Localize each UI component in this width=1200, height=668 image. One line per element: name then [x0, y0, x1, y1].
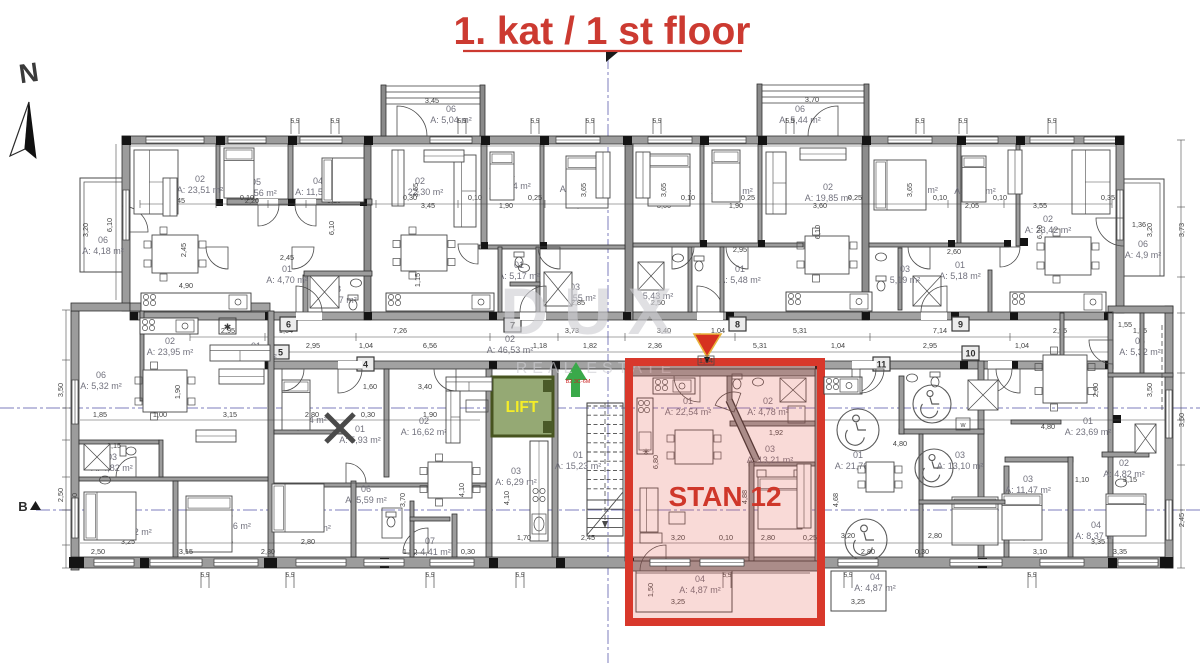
svg-text:10: 10 — [965, 349, 975, 359]
svg-text:06: 06 — [96, 370, 106, 380]
svg-text:03: 03 — [1023, 474, 1033, 484]
svg-text:A: 4,18 m²: A: 4,18 m² — [82, 246, 124, 256]
svg-text:1,90: 1,90 — [173, 385, 182, 399]
svg-text:5,5: 5,5 — [586, 119, 595, 125]
svg-text:3,35: 3,35 — [1113, 547, 1127, 556]
svg-text:2,80: 2,80 — [301, 537, 315, 546]
svg-text:0,10: 0,10 — [468, 193, 482, 202]
svg-text:0,10: 0,10 — [240, 193, 254, 202]
svg-text:1,00: 1,00 — [153, 410, 167, 419]
svg-text:9: 9 — [958, 320, 963, 330]
svg-text:2,95: 2,95 — [306, 341, 320, 350]
svg-text:0,25: 0,25 — [741, 193, 755, 202]
svg-text:0,30: 0,30 — [461, 547, 475, 556]
svg-text:02: 02 — [1043, 214, 1053, 224]
svg-text:A: 5,18 m²: A: 5,18 m² — [939, 271, 981, 281]
svg-text:3,60: 3,60 — [813, 201, 827, 210]
svg-text:✱: ✱ — [224, 322, 232, 332]
svg-text:02: 02 — [823, 182, 833, 192]
svg-text:02: 02 — [195, 174, 205, 184]
svg-text:2,60: 2,60 — [1091, 383, 1100, 397]
svg-text:A: 13,10 m²: A: 13,10 m² — [937, 461, 984, 471]
svg-text:1. kat / 1 st floor: 1. kat / 1 st floor — [454, 10, 751, 53]
svg-text:6,10: 6,10 — [327, 221, 336, 235]
svg-text:1,10: 1,10 — [1075, 475, 1089, 484]
svg-text:A: 19,85 m²: A: 19,85 m² — [805, 193, 852, 203]
svg-text:3,70: 3,70 — [805, 95, 819, 104]
svg-text:1,04: 1,04 — [831, 341, 845, 350]
svg-text:1,55: 1,55 — [1118, 320, 1132, 329]
svg-text:0,10: 0,10 — [993, 193, 1007, 202]
svg-text:5,5: 5,5 — [1028, 573, 1037, 579]
svg-text:2,45: 2,45 — [1177, 513, 1186, 527]
svg-text:06: 06 — [1138, 239, 1148, 249]
svg-text:11: 11 — [877, 360, 887, 370]
svg-text:5,5: 5,5 — [458, 119, 467, 125]
svg-text:A: 5,48 m²: A: 5,48 m² — [719, 275, 761, 285]
svg-text:A: 6,29 m²: A: 6,29 m² — [495, 477, 537, 487]
svg-text:2,95: 2,95 — [733, 245, 747, 254]
svg-text:5,19 m²: 5,19 m² — [890, 275, 921, 285]
svg-text:A: 23,51 m²: A: 23,51 m² — [177, 185, 224, 195]
svg-text:3,50: 3,50 — [1177, 413, 1186, 427]
svg-text:01: 01 — [955, 260, 965, 270]
svg-text:3,73: 3,73 — [1177, 223, 1186, 237]
svg-text:8: 8 — [735, 320, 740, 330]
svg-text:02: 02 — [165, 336, 175, 346]
svg-text:B: B — [18, 499, 27, 514]
svg-text:2,60: 2,60 — [947, 247, 961, 256]
svg-text:3,65: 3,65 — [905, 183, 914, 197]
svg-text:3,65: 3,65 — [659, 183, 668, 197]
svg-text:5,5: 5,5 — [916, 119, 925, 125]
svg-text:2,45: 2,45 — [179, 243, 188, 257]
svg-text:3,50: 3,50 — [56, 383, 65, 397]
svg-text:A: 4,9 m²: A: 4,9 m² — [1125, 250, 1162, 260]
svg-text:4,68: 4,68 — [831, 493, 840, 507]
svg-text:5,5: 5,5 — [291, 119, 300, 125]
svg-text:5,5: 5,5 — [331, 119, 340, 125]
svg-text:03: 03 — [511, 466, 521, 476]
svg-text:0,25: 0,25 — [528, 193, 542, 202]
svg-text:A: 5,32 m²: A: 5,32 m² — [80, 381, 122, 391]
svg-text:5: 5 — [278, 348, 283, 358]
svg-text:7,14: 7,14 — [933, 326, 947, 335]
svg-text:DUX: DUX — [500, 274, 687, 348]
svg-text:2,80: 2,80 — [928, 531, 942, 540]
svg-text:A: 4,87 m²: A: 4,87 m² — [854, 583, 896, 593]
svg-text:4: 4 — [363, 360, 368, 370]
svg-text:3,45: 3,45 — [421, 201, 435, 210]
svg-text:5,5: 5,5 — [844, 573, 853, 579]
svg-text:0,10: 0,10 — [681, 193, 695, 202]
svg-text:3,15: 3,15 — [223, 410, 237, 419]
svg-text:LIFT: LIFT — [506, 399, 539, 416]
svg-text:3,20: 3,20 — [81, 223, 90, 237]
svg-text:04: 04 — [870, 572, 880, 582]
svg-text:3,15: 3,15 — [179, 547, 193, 556]
svg-text:0,10: 0,10 — [933, 193, 947, 202]
svg-text:5,5: 5,5 — [201, 573, 210, 579]
svg-text:01: 01 — [355, 424, 365, 434]
svg-text:3,40: 3,40 — [418, 382, 432, 391]
svg-text:01: 01 — [282, 264, 292, 274]
svg-text:4,90: 4,90 — [179, 281, 193, 290]
svg-text:A: 23,69 m²: A: 23,69 m² — [1065, 427, 1112, 437]
svg-text:6,56: 6,56 — [423, 341, 437, 350]
svg-text:3,45: 3,45 — [425, 96, 439, 105]
svg-text:3,20: 3,20 — [1145, 223, 1154, 237]
svg-text:3,10: 3,10 — [1033, 547, 1047, 556]
svg-text:5,5: 5,5 — [516, 573, 525, 579]
svg-text:1,85: 1,85 — [93, 410, 107, 419]
svg-text:0,25: 0,25 — [848, 193, 862, 202]
svg-text:1,04: 1,04 — [699, 356, 713, 365]
svg-text:3,70: 3,70 — [398, 493, 407, 507]
svg-text:w: w — [959, 422, 966, 429]
svg-text:07: 07 — [425, 536, 435, 546]
svg-text:A: 23,95 m²: A: 23,95 m² — [147, 347, 194, 357]
svg-text:3,15: 3,15 — [1123, 475, 1137, 484]
svg-text:1,90: 1,90 — [499, 201, 513, 210]
svg-text:06: 06 — [795, 104, 805, 114]
svg-text:5,31: 5,31 — [753, 341, 767, 350]
svg-text:5,5: 5,5 — [653, 119, 662, 125]
svg-text:4,10: 4,10 — [502, 491, 511, 505]
svg-text:2,50: 2,50 — [56, 488, 65, 502]
svg-text:6,10: 6,10 — [813, 225, 822, 239]
svg-text:0,35: 0,35 — [1101, 193, 1115, 202]
svg-text:03: 03 — [955, 450, 965, 460]
svg-text:3,20: 3,20 — [841, 531, 855, 540]
svg-text:5,5: 5,5 — [426, 573, 435, 579]
svg-text:5,5: 5,5 — [786, 119, 795, 125]
svg-text:A: 4,70 m²: A: 4,70 m² — [266, 275, 308, 285]
svg-text:A: 16,62 m²: A: 16,62 m² — [401, 427, 448, 437]
svg-text:1,70: 1,70 — [517, 533, 531, 542]
svg-text:5,31: 5,31 — [793, 326, 807, 335]
svg-text:4,80: 4,80 — [893, 439, 907, 448]
svg-text:03: 03 — [900, 264, 910, 274]
svg-text:1,15: 1,15 — [413, 273, 422, 287]
svg-text:6,10: 6,10 — [105, 218, 114, 232]
svg-text:5,5: 5,5 — [531, 119, 540, 125]
svg-text:4,10: 4,10 — [457, 483, 466, 497]
svg-text:STAN 12: STAN 12 — [668, 481, 781, 512]
svg-text:06: 06 — [98, 235, 108, 245]
svg-text:1,60: 1,60 — [363, 382, 377, 391]
svg-text:5,5: 5,5 — [1048, 119, 1057, 125]
svg-text:A: 11,47 m²: A: 11,47 m² — [1005, 485, 1051, 495]
svg-text:3,65: 3,65 — [579, 183, 588, 197]
svg-text:A: 23,42 m²: A: 23,42 m² — [1025, 225, 1072, 235]
svg-text:6,10: 6,10 — [1035, 225, 1044, 239]
svg-text:7,26: 7,26 — [393, 326, 407, 335]
svg-text:0,30: 0,30 — [361, 410, 375, 419]
svg-text:5,5: 5,5 — [286, 573, 295, 579]
svg-text:04: 04 — [313, 176, 323, 186]
svg-text:01: 01 — [573, 450, 583, 460]
svg-text:2,50: 2,50 — [91, 547, 105, 556]
svg-text:1,90: 1,90 — [423, 410, 437, 419]
svg-text:01: 01 — [1083, 416, 1093, 426]
svg-text:3,55: 3,55 — [1033, 201, 1047, 210]
svg-text:N: N — [17, 57, 40, 89]
svg-text:0,30: 0,30 — [915, 547, 929, 556]
svg-text:02: 02 — [1119, 458, 1129, 468]
svg-text:06: 06 — [446, 104, 456, 114]
svg-text:2,95: 2,95 — [923, 341, 937, 350]
svg-text:6: 6 — [286, 320, 291, 330]
svg-text:3,50: 3,50 — [1145, 383, 1154, 397]
svg-text:A: 15,23 m²: A: 15,23 m² — [555, 461, 602, 471]
svg-text:2,80: 2,80 — [861, 547, 875, 556]
svg-text:1,04: 1,04 — [359, 341, 373, 350]
svg-text:2,80: 2,80 — [261, 547, 275, 556]
svg-text:5,5: 5,5 — [959, 119, 968, 125]
svg-text:2,80: 2,80 — [305, 410, 319, 419]
svg-text:04: 04 — [1091, 520, 1101, 530]
svg-text:B2 3C-6M: B2 3C-6M — [566, 379, 591, 385]
svg-text:1,36: 1,36 — [1132, 220, 1146, 229]
svg-text:3,35: 3,35 — [1091, 537, 1105, 546]
svg-text:1,04: 1,04 — [1015, 341, 1029, 350]
svg-text:06: 06 — [361, 484, 371, 494]
svg-text:3,25: 3,25 — [851, 597, 865, 606]
svg-text:3,65: 3,65 — [411, 183, 420, 197]
